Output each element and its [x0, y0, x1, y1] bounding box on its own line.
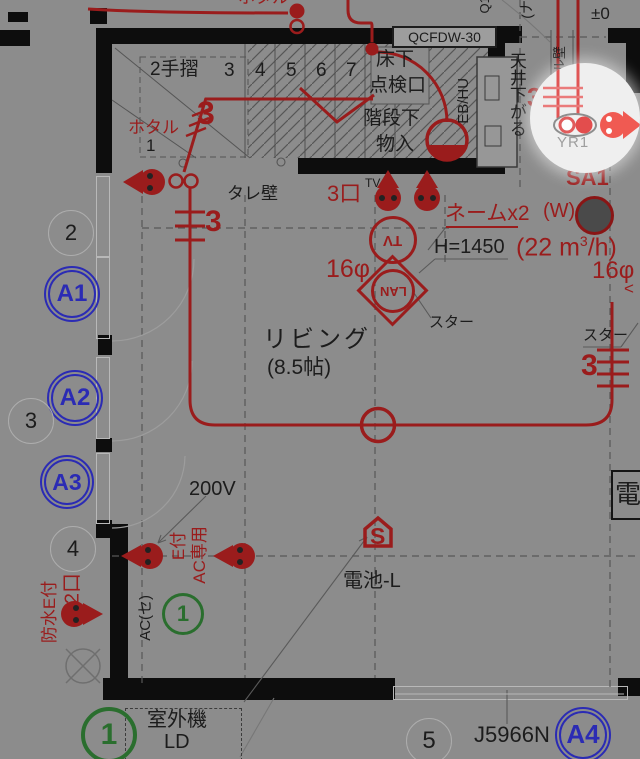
airflow-a: (22 m: [516, 233, 580, 261]
wire-count-3: 3: [205, 206, 222, 238]
hotaru-switch-label: ホタル: [128, 119, 179, 137]
window-tag-a1: A1: [44, 266, 100, 322]
opening-number-circle: 5: [406, 718, 452, 759]
arrow-chevron: <: [624, 280, 634, 298]
hotaru-top-fragment: ホタル: [238, 0, 289, 7]
window-tag-label: A3: [52, 470, 81, 494]
height-label: H=1450: [434, 237, 505, 258]
window-tag-label: A2: [60, 385, 91, 410]
top-fragment-paren: (ナ: [520, 0, 535, 22]
voltage-label: 200V: [189, 479, 236, 500]
window-tag-label: A1: [57, 281, 88, 306]
fixture-tag: YR1: [557, 135, 589, 151]
lamp-right-icon: [576, 117, 593, 134]
under-stair-closet2: 物入: [376, 135, 414, 155]
underfloor-hatch-label2: 点検口: [369, 76, 426, 96]
hanging-wall-note: タレ壁: [227, 185, 278, 203]
spotlight-content: [530, 63, 640, 173]
outlet-icon: [213, 543, 255, 569]
outlet-icon: [414, 170, 440, 211]
lan-outlet-label: LAN: [380, 284, 407, 299]
duct-dia-left: 16φ: [326, 256, 370, 282]
window-tag-a4: A4: [555, 707, 611, 759]
ac-se-note: AC(セ): [138, 585, 154, 651]
wire-count-3: 3: [197, 97, 215, 131]
step-number: 3: [224, 61, 235, 81]
star-note-right: スター: [583, 328, 628, 344]
lamp-left-icon: [560, 118, 574, 132]
opening-number: 5: [422, 728, 435, 753]
circuit-number-circle: 1: [162, 593, 204, 635]
tv-small-label: TV: [365, 177, 380, 190]
electric-panel-box: 電: [611, 470, 640, 520]
handrail-label: 2手摺: [150, 60, 199, 80]
smoke-detector-label: S: [370, 524, 385, 548]
step-number: 5: [286, 61, 297, 81]
electric-panel-label: 電: [615, 481, 640, 508]
cursor-icon: [600, 111, 640, 139]
opening-number-circle: 3: [8, 398, 54, 444]
outlet-icon: [121, 543, 163, 569]
opening-number: 4: [67, 537, 79, 560]
equipment-tag: QCFDW-30: [408, 30, 481, 45]
window-tag-a2: A2: [47, 370, 103, 426]
circuit-number: 1: [101, 719, 118, 751]
earth-note: E付: [170, 526, 188, 566]
top-fragment-q: Q1: [478, 0, 492, 16]
step-number: 6: [316, 61, 327, 81]
under-stair-closet1: 階段下: [363, 109, 420, 129]
tv-outlet-label: TV: [383, 232, 402, 249]
step-number-1: 1: [146, 137, 155, 155]
ceiling-drop-note: 天井下がる: [507, 52, 525, 170]
waterproof-outlet-note: 防水E付: [41, 573, 59, 651]
opening-number-circle: 4: [50, 526, 96, 572]
product-code: J5966N: [474, 723, 550, 746]
ac-only-note: AC専用: [191, 517, 209, 593]
underfloor-hatch-label1: 床下: [376, 50, 414, 70]
spotlight-highlight[interactable]: YR1: [530, 63, 640, 173]
equipment-tag-box: QCFDW-30: [392, 26, 497, 48]
wire-count-3: 3: [581, 350, 598, 382]
eb-hu-label: EB/HU: [456, 66, 472, 136]
outlet-ports-label: 3口: [327, 182, 361, 205]
outlet-icon: [123, 169, 165, 195]
name-x2-label: ネームx2: [445, 203, 530, 225]
outdoor-unit-room: LD: [164, 732, 190, 753]
level-mark: ±0: [591, 5, 610, 23]
step-number: 4: [255, 61, 266, 81]
opening-number: 2: [65, 221, 77, 244]
lan-outlet-symbol: LAN: [371, 269, 415, 313]
airflow-sup: 3: [580, 233, 588, 249]
room-name: リビング: [263, 327, 371, 352]
window-tag-label: A4: [566, 721, 599, 748]
floor-plan-screenshot: ホタル Q1 (ナ ±0 QCFDW-30 2手摺 3 4 5 6 7 1 ホタ…: [0, 0, 640, 759]
circuit-number: 1: [177, 602, 189, 625]
star-note-left: スター: [429, 315, 474, 331]
room-size: (8.5帖): [267, 357, 331, 379]
outdoor-unit-label: 室外機: [147, 710, 207, 731]
circuit-number-circle: 1: [81, 707, 137, 759]
supply-air-diffuser-icon: [575, 196, 614, 235]
step-number: 7: [346, 61, 357, 81]
window-tag-a3: A3: [40, 455, 94, 509]
ports2-note: 2口: [63, 569, 84, 609]
w-mark: (W): [543, 201, 575, 222]
opening-number: 3: [25, 409, 37, 432]
battery-type-label: 電池-L: [343, 571, 401, 592]
opening-number-circle: 2: [48, 210, 94, 256]
